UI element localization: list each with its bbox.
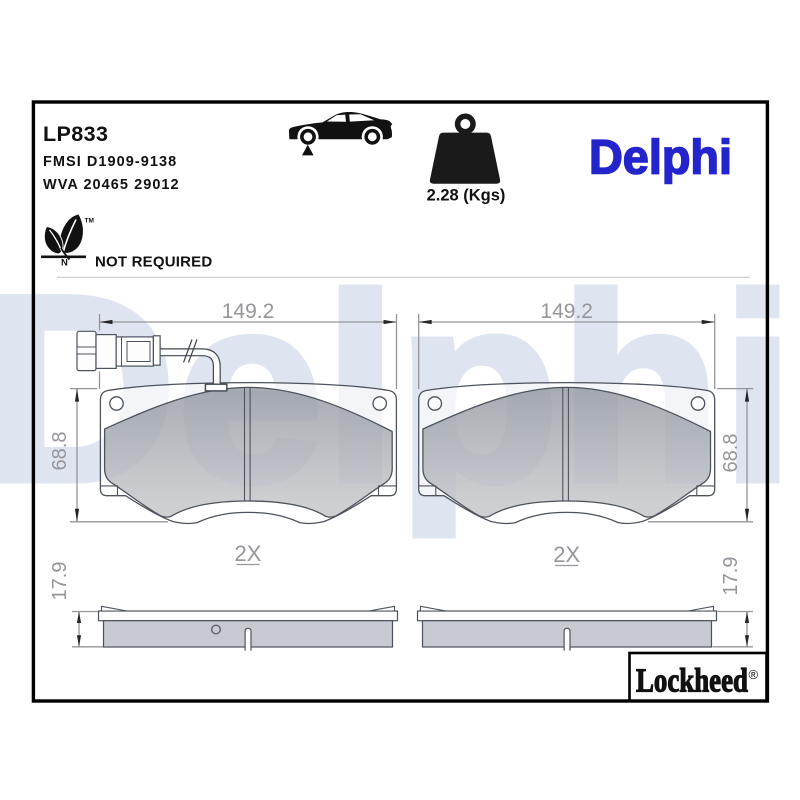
svg-text:2X: 2X bbox=[235, 541, 262, 566]
svg-text:LP833: LP833 bbox=[43, 122, 108, 146]
svg-text:68.8: 68.8 bbox=[49, 432, 71, 471]
svg-text:NOT REQUIRED: NOT REQUIRED bbox=[95, 254, 212, 271]
svg-text:Delphi: Delphi bbox=[589, 132, 732, 185]
svg-text:N: N bbox=[61, 258, 68, 269]
svg-text:TM: TM bbox=[85, 218, 94, 225]
svg-text:WVA 20465 29012: WVA 20465 29012 bbox=[43, 177, 180, 193]
svg-text:149.2: 149.2 bbox=[222, 300, 275, 323]
svg-text:FMSI D1909-9138: FMSI D1909-9138 bbox=[43, 154, 177, 170]
svg-text:2X: 2X bbox=[553, 542, 580, 567]
svg-text:149.2: 149.2 bbox=[540, 300, 593, 323]
svg-text:68.8: 68.8 bbox=[720, 434, 742, 473]
svg-text:17.9: 17.9 bbox=[720, 557, 742, 596]
svg-text:2.28 (Kgs): 2.28 (Kgs) bbox=[427, 187, 506, 205]
svg-text:Lockheed: Lockheed bbox=[636, 663, 748, 700]
svg-text:17.9: 17.9 bbox=[49, 562, 71, 601]
svg-text:®: ® bbox=[749, 667, 759, 682]
